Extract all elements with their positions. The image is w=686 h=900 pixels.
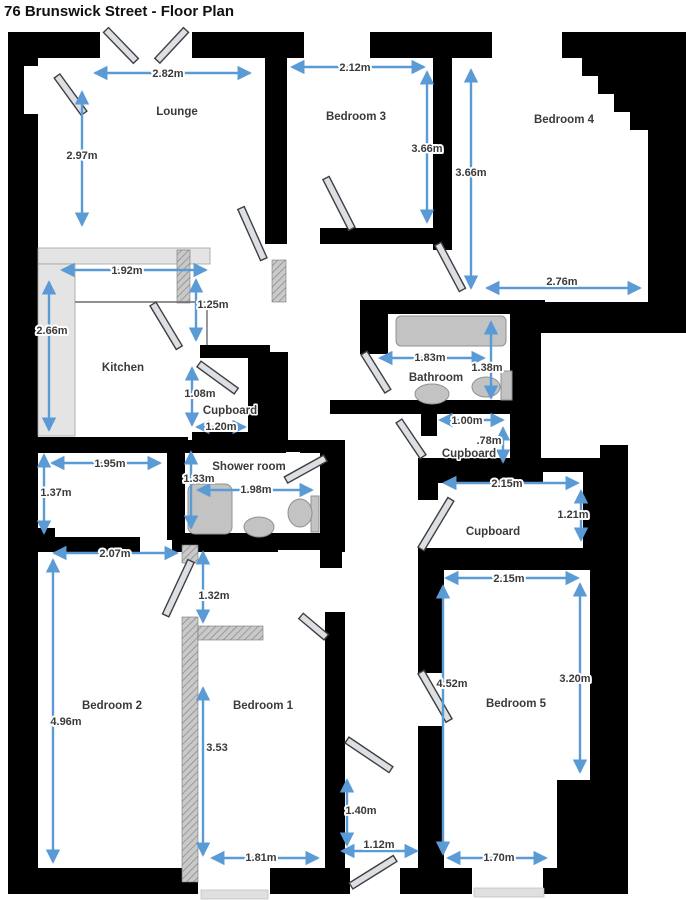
kitchen-counter xyxy=(38,264,75,436)
dimension-label: 1.92m xyxy=(111,265,142,277)
room-label-cupboard-3: Cupboard xyxy=(466,526,520,538)
room-label-bedroom3: Bedroom 3 xyxy=(326,111,386,123)
sink-fixture xyxy=(288,499,312,527)
dimension-label: 2.12m xyxy=(339,62,370,74)
dimension-label: 1.95m xyxy=(94,458,125,470)
dimension-label: 1.81m xyxy=(245,852,276,864)
dimension-label: 2.97m xyxy=(66,150,97,162)
window-sill xyxy=(474,888,544,897)
wall xyxy=(418,458,438,500)
window-sills xyxy=(201,888,544,899)
wall xyxy=(8,32,38,882)
door xyxy=(323,176,355,230)
wall xyxy=(287,32,304,58)
wall xyxy=(543,868,628,894)
shower-tray-fixture xyxy=(188,484,232,534)
wall xyxy=(30,440,168,453)
room-label-bedroom2: Bedroom 2 xyxy=(82,700,142,712)
toilet-fixture xyxy=(244,517,274,537)
dimension-label: 1.37m xyxy=(40,487,71,499)
dimension-label: 4.52m xyxy=(436,678,467,690)
wall xyxy=(270,352,288,440)
wall xyxy=(510,314,541,472)
dimension-label: 2.15m xyxy=(493,573,524,585)
wall xyxy=(541,302,648,333)
kitchen-boundary-line xyxy=(75,302,207,345)
wall xyxy=(265,32,287,244)
wall xyxy=(320,552,342,568)
wall xyxy=(38,528,55,538)
wall xyxy=(421,414,437,436)
dimension-label: 2.82m xyxy=(152,68,183,80)
dimension-label: 1.12m xyxy=(363,839,394,851)
dimension-label: .78m xyxy=(476,435,501,447)
dimension-label: 3.66m xyxy=(411,143,442,155)
room-label-shower-room: Shower room xyxy=(212,461,285,473)
wall xyxy=(557,780,628,868)
wall xyxy=(418,726,444,868)
wall xyxy=(418,570,444,673)
room-label-bedroom4: Bedroom 4 xyxy=(534,114,595,126)
wall xyxy=(418,458,596,472)
window-sill xyxy=(201,890,268,899)
door xyxy=(418,497,454,550)
dimension-label: 3.53 xyxy=(206,742,227,754)
dimension-label: 1.83m xyxy=(414,352,445,364)
room-label-lounge: Lounge xyxy=(156,106,198,118)
dimension-label: 1.20m xyxy=(205,421,236,433)
door xyxy=(162,560,194,617)
dimension-label: 3.66m xyxy=(455,167,486,179)
wall xyxy=(270,868,350,894)
door xyxy=(299,613,329,640)
stud-wall xyxy=(182,617,198,882)
wall xyxy=(8,868,198,894)
dimension-label: 2.07m xyxy=(99,548,130,560)
wall xyxy=(8,32,100,58)
dimension-label: 1.40m xyxy=(345,805,376,817)
dimension-label: 1.98m xyxy=(240,484,271,496)
wall xyxy=(562,32,582,58)
dimension-label: 1.33m xyxy=(183,473,214,485)
floor-plan-page: 76 Brunswick Street - Floor Plan xyxy=(0,0,686,900)
dimension-label: 1.08m xyxy=(184,388,215,400)
wall xyxy=(330,400,510,414)
dimension-label: 1.38m xyxy=(471,362,502,374)
door xyxy=(150,302,182,349)
dimension-label: 1.32m xyxy=(198,590,229,602)
stud-wall xyxy=(198,626,263,640)
door xyxy=(345,737,393,772)
toilet-fixture xyxy=(472,377,500,397)
wall xyxy=(452,32,492,58)
dimension-label: 4.96m xyxy=(50,716,81,728)
wall xyxy=(418,548,596,570)
wall xyxy=(180,440,286,453)
wall xyxy=(320,228,452,244)
room-label-bedroom5: Bedroom 5 xyxy=(486,698,547,710)
bathtub-fixture xyxy=(396,316,506,346)
wall xyxy=(590,560,628,782)
room-label-bathroom: Bathroom xyxy=(409,372,463,384)
wall xyxy=(167,440,185,540)
stud-wall xyxy=(177,250,190,303)
wall xyxy=(325,612,345,868)
wall xyxy=(360,300,388,354)
floor-plan: 2.82m 2.97m 2.12m 3.66m 3.66m 2.76m 1.92… xyxy=(0,0,686,900)
door xyxy=(155,28,189,63)
door xyxy=(238,207,267,261)
wall xyxy=(248,345,270,433)
stud-wall xyxy=(272,260,286,302)
dimension-label: 1.25m xyxy=(197,299,228,311)
room-label-kitchen: Kitchen xyxy=(102,362,144,374)
dimension-label: 1.70m xyxy=(483,852,514,864)
dimension-label: 2.15m xyxy=(491,478,522,490)
toilet-cistern-fixture xyxy=(501,371,512,400)
wall xyxy=(418,868,472,894)
dimension-label: 1.00m xyxy=(451,415,482,427)
dimension-label: 1.21m xyxy=(557,509,588,521)
dimension-label: 3.20m xyxy=(559,673,590,685)
door xyxy=(103,28,138,64)
dimension-label: 2.66m xyxy=(36,325,67,337)
wall xyxy=(370,32,452,58)
room-label-cupboard-1: Cupboard xyxy=(203,405,257,417)
bay-window-opening xyxy=(24,66,42,114)
door xyxy=(349,855,397,888)
sink-fixture xyxy=(415,384,449,404)
room-label-bedroom1: Bedroom 1 xyxy=(233,700,294,712)
room-label-cupboard-2: Cupboard xyxy=(442,448,496,460)
dimension-label: 2.76m xyxy=(546,276,577,288)
